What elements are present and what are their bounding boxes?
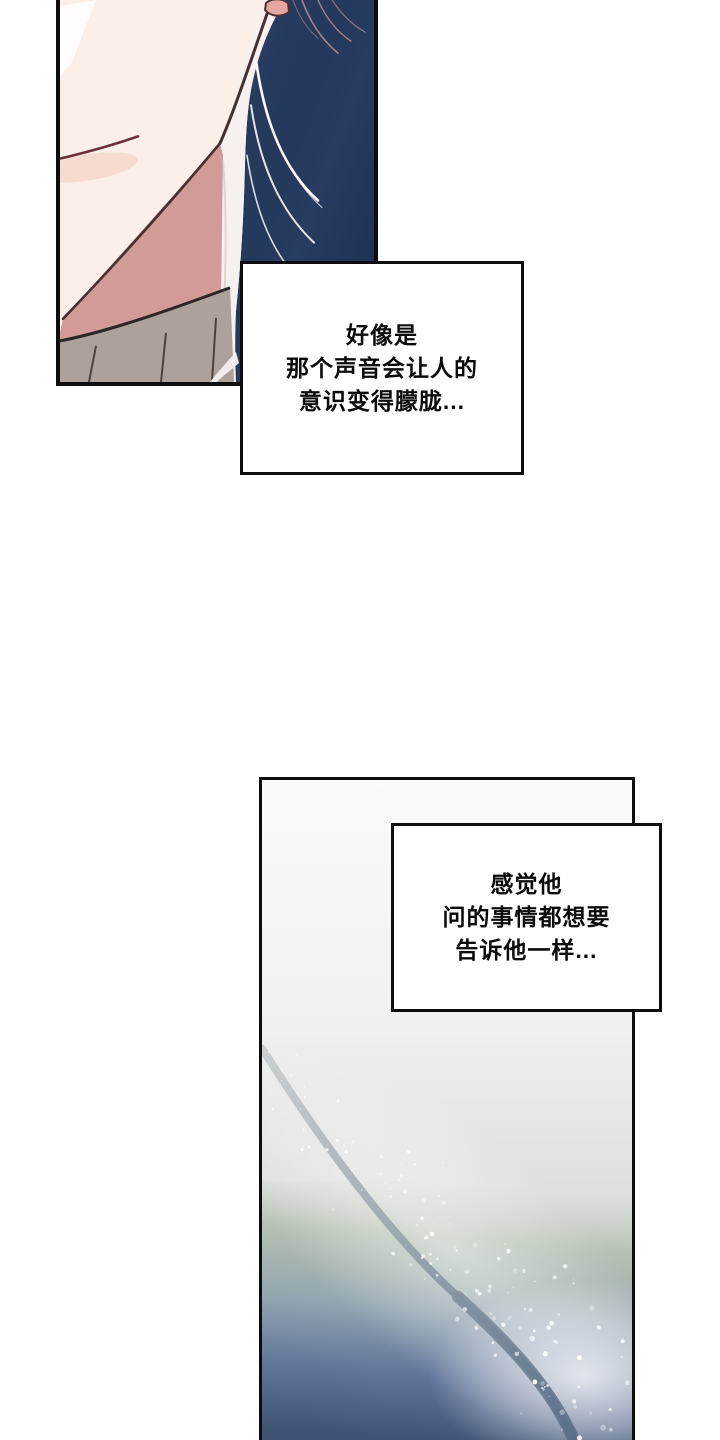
bubble-text-line: 好像是 xyxy=(346,319,418,352)
bubble-text-line: 感觉他 xyxy=(491,868,563,901)
bubble-text-line: 告诉他一样... xyxy=(455,934,597,967)
bubble-text-line: 意识变得朦胧... xyxy=(299,385,465,418)
ear xyxy=(265,0,289,16)
speech-bubble-2: 感觉他 问的事情都想要 告诉他一样... xyxy=(391,823,662,1012)
bubble-text-line: 那个声音会让人的 xyxy=(286,352,478,385)
comic-page: 好像是 那个声音会让人的 意识变得朦胧... 感觉他 问的事情都想要 告诉他一样… xyxy=(0,0,720,1440)
bubble-text-line: 问的事情都想要 xyxy=(443,901,611,934)
speech-bubble-1: 好像是 那个声音会让人的 意识变得朦胧... xyxy=(240,261,524,475)
